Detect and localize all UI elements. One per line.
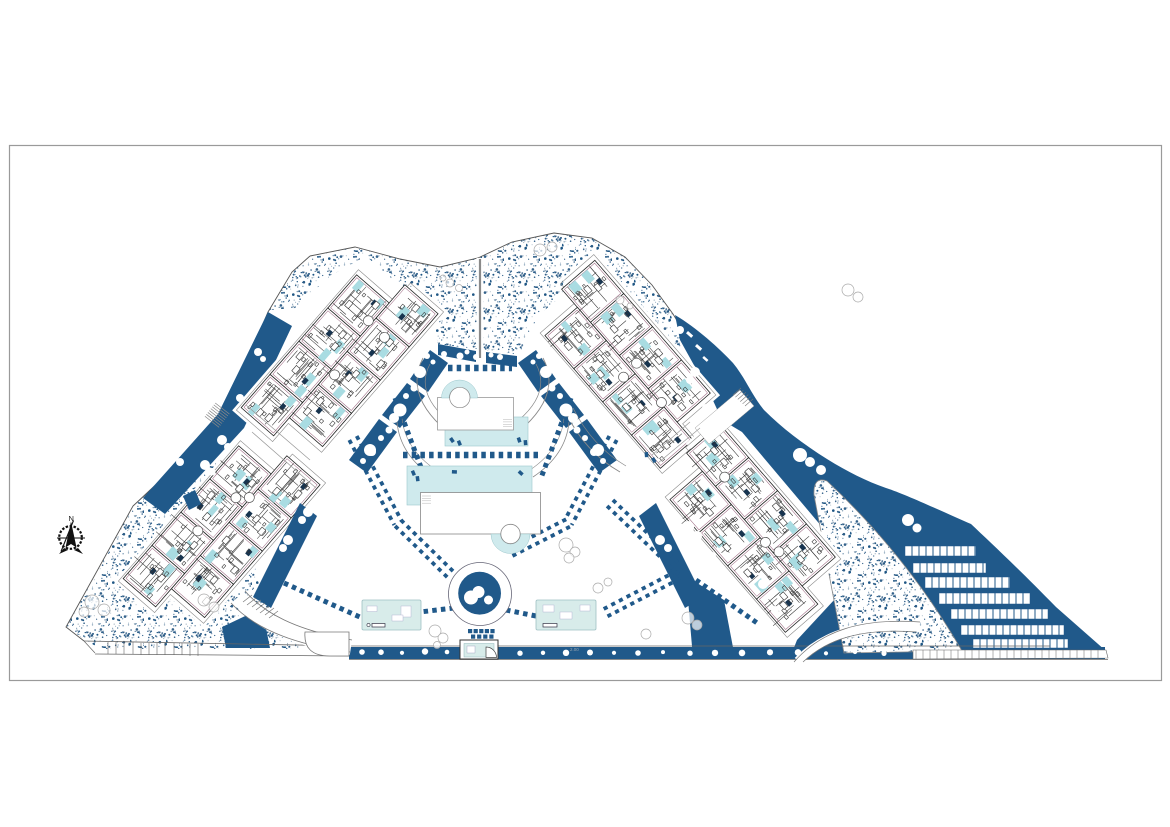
svg-text:2.00: 2.00 [570, 647, 579, 652]
svg-text:N: N [69, 514, 74, 523]
